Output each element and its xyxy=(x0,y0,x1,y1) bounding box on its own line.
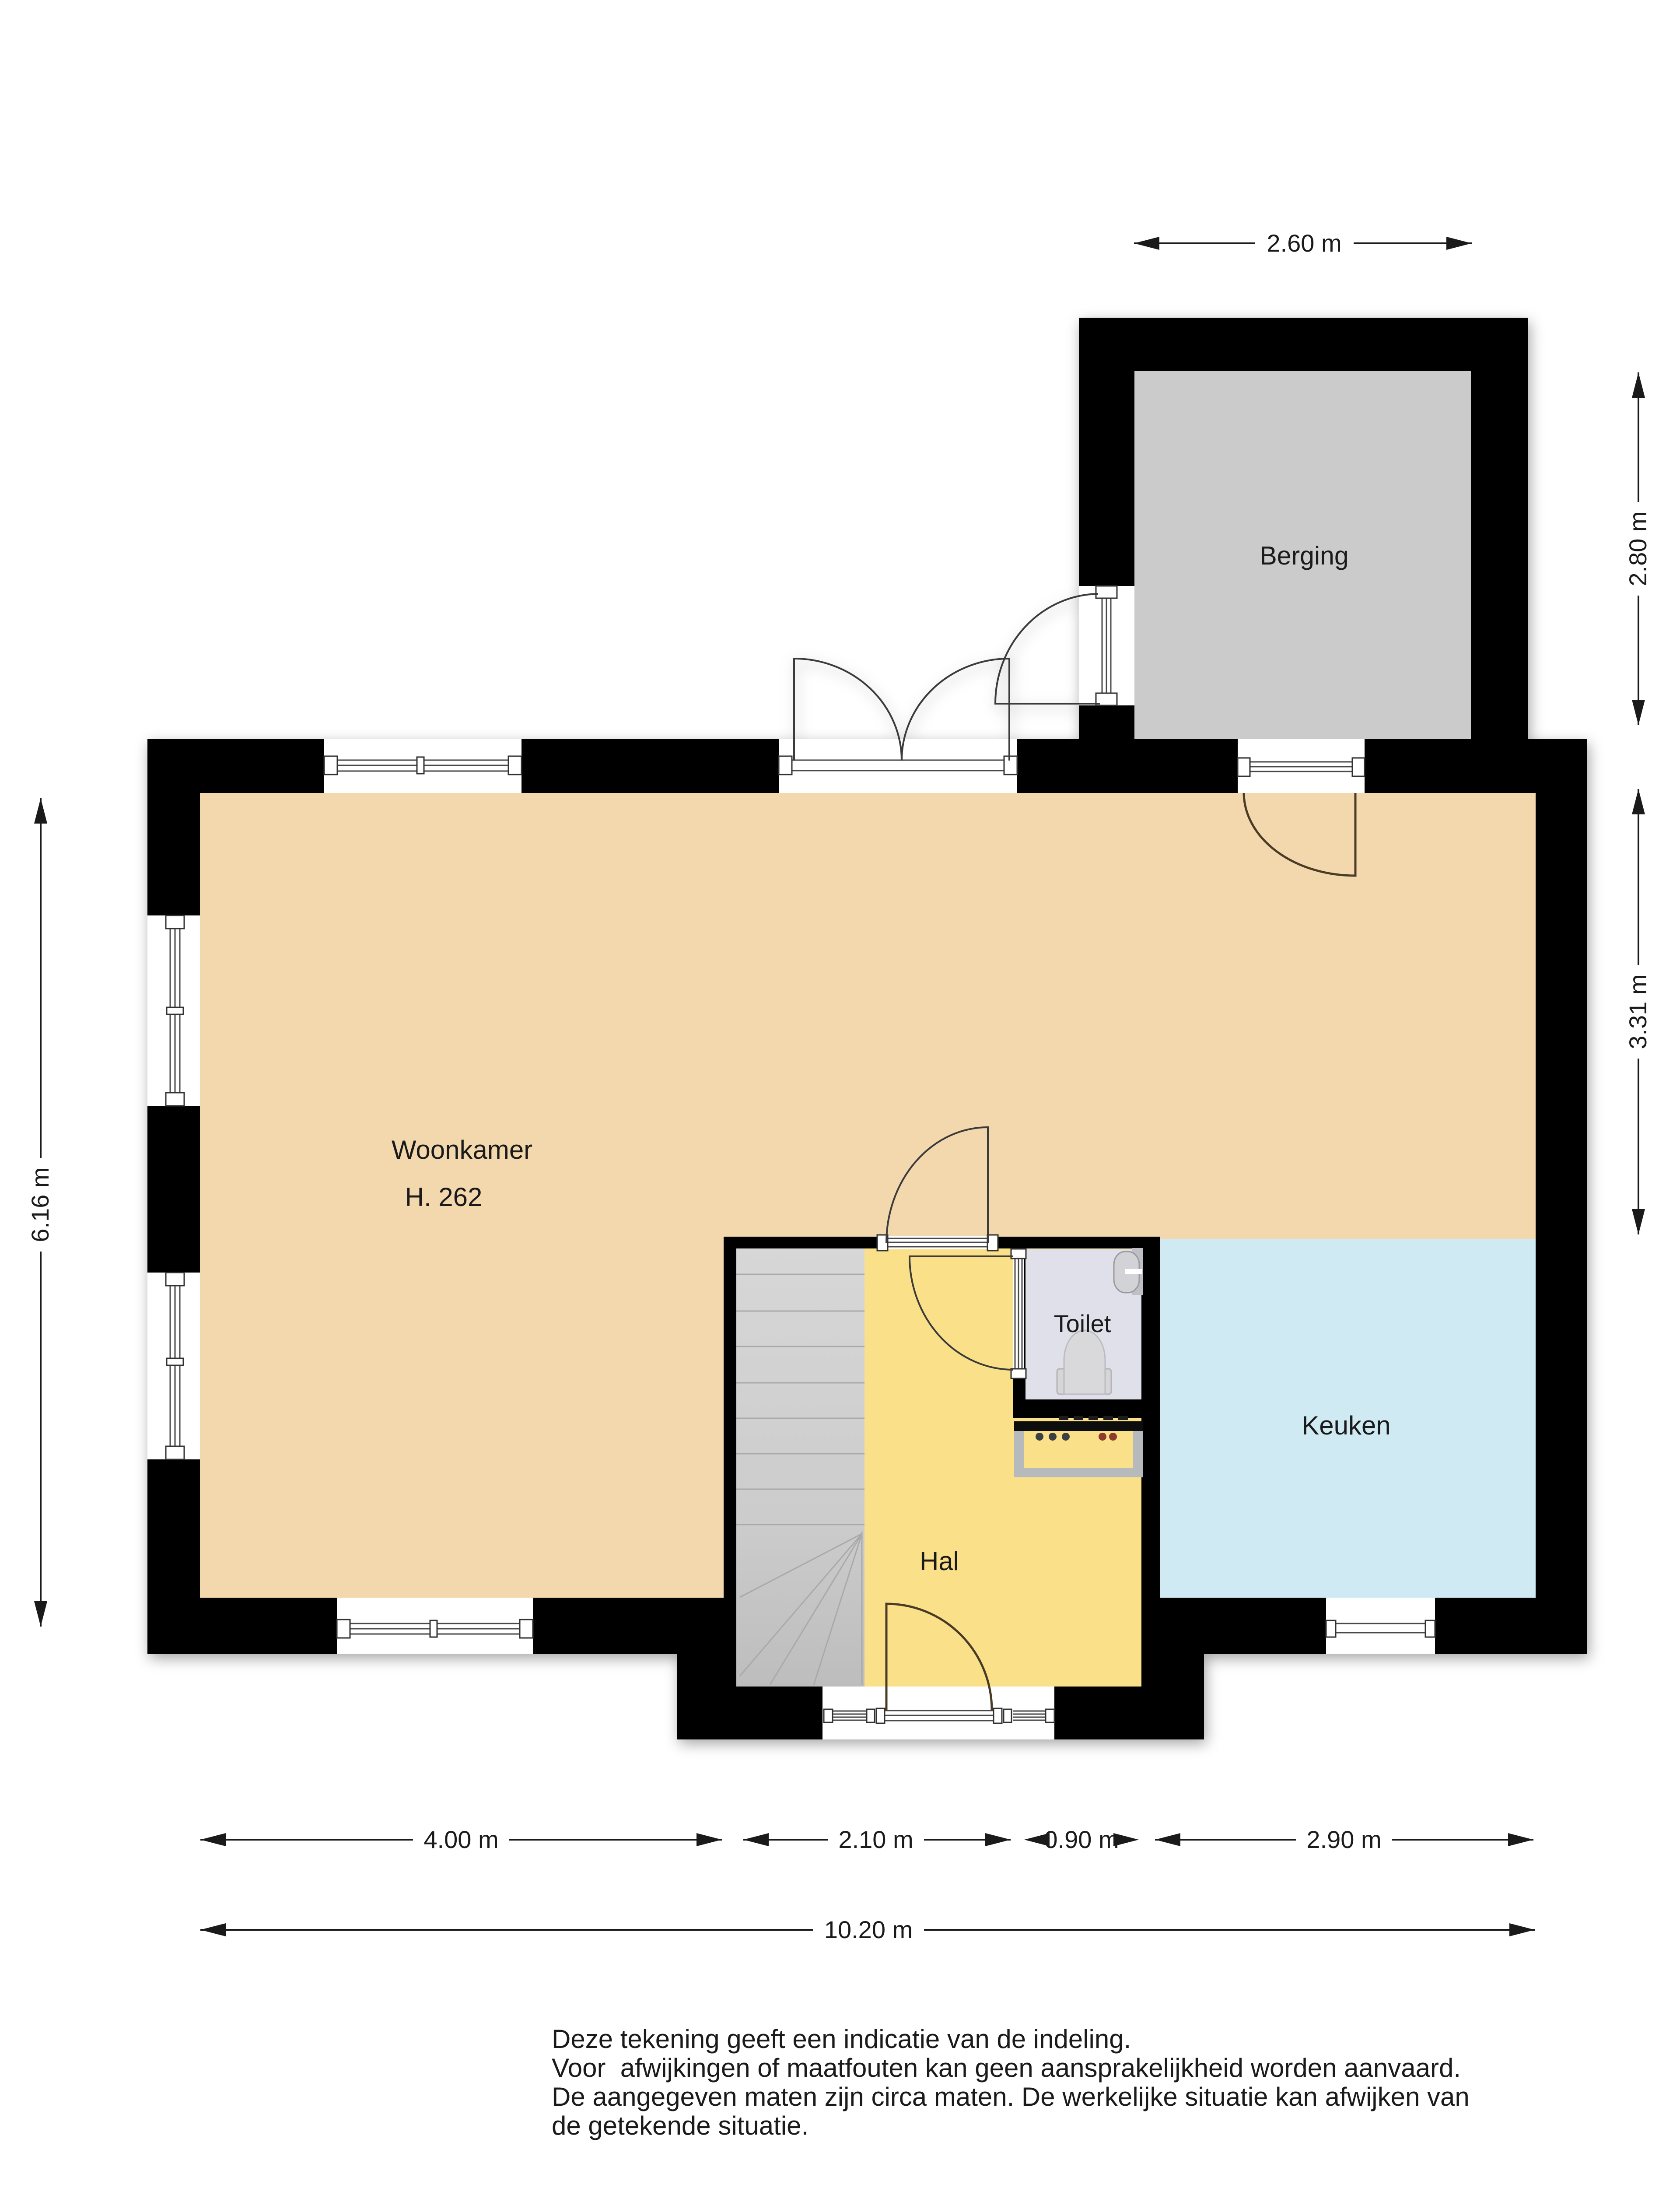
svg-text:Deze tekening geeft een indica: Deze tekening geeft een indicatie van de… xyxy=(552,2024,1131,2054)
svg-text:Woonkamer: Woonkamer xyxy=(392,1135,532,1164)
svg-text:2.80 m: 2.80 m xyxy=(1624,511,1652,586)
svg-text:2.90 m: 2.90 m xyxy=(1306,1826,1381,1853)
svg-text:0.90 m: 0.90 m xyxy=(1044,1826,1119,1853)
svg-text:2.60 m: 2.60 m xyxy=(1267,229,1341,257)
svg-text:Voor afwijkingen of maatfoute: Voor afwijkingen of maatfouten kan geen … xyxy=(552,2053,1461,2083)
svg-text:Keuken: Keuken xyxy=(1302,1411,1391,1440)
svg-text:2.10 m: 2.10 m xyxy=(838,1826,913,1853)
svg-text:Berging: Berging xyxy=(1260,541,1348,570)
svg-text:4.00 m: 4.00 m xyxy=(423,1826,498,1853)
svg-text:6.16 m: 6.16 m xyxy=(26,1167,54,1242)
svg-text:de getekende situatie.: de getekende situatie. xyxy=(552,2111,808,2140)
svg-text:10.20 m: 10.20 m xyxy=(824,1916,913,1943)
svg-text:De aangegeven maten zijn circa: De aangegeven maten zijn circa maten. De… xyxy=(552,2082,1470,2111)
svg-text:H. 262: H. 262 xyxy=(405,1182,483,1212)
svg-text:Hal: Hal xyxy=(920,1546,959,1576)
svg-text:3.31 m: 3.31 m xyxy=(1624,974,1652,1049)
svg-text:Toilet: Toilet xyxy=(1054,1310,1111,1337)
